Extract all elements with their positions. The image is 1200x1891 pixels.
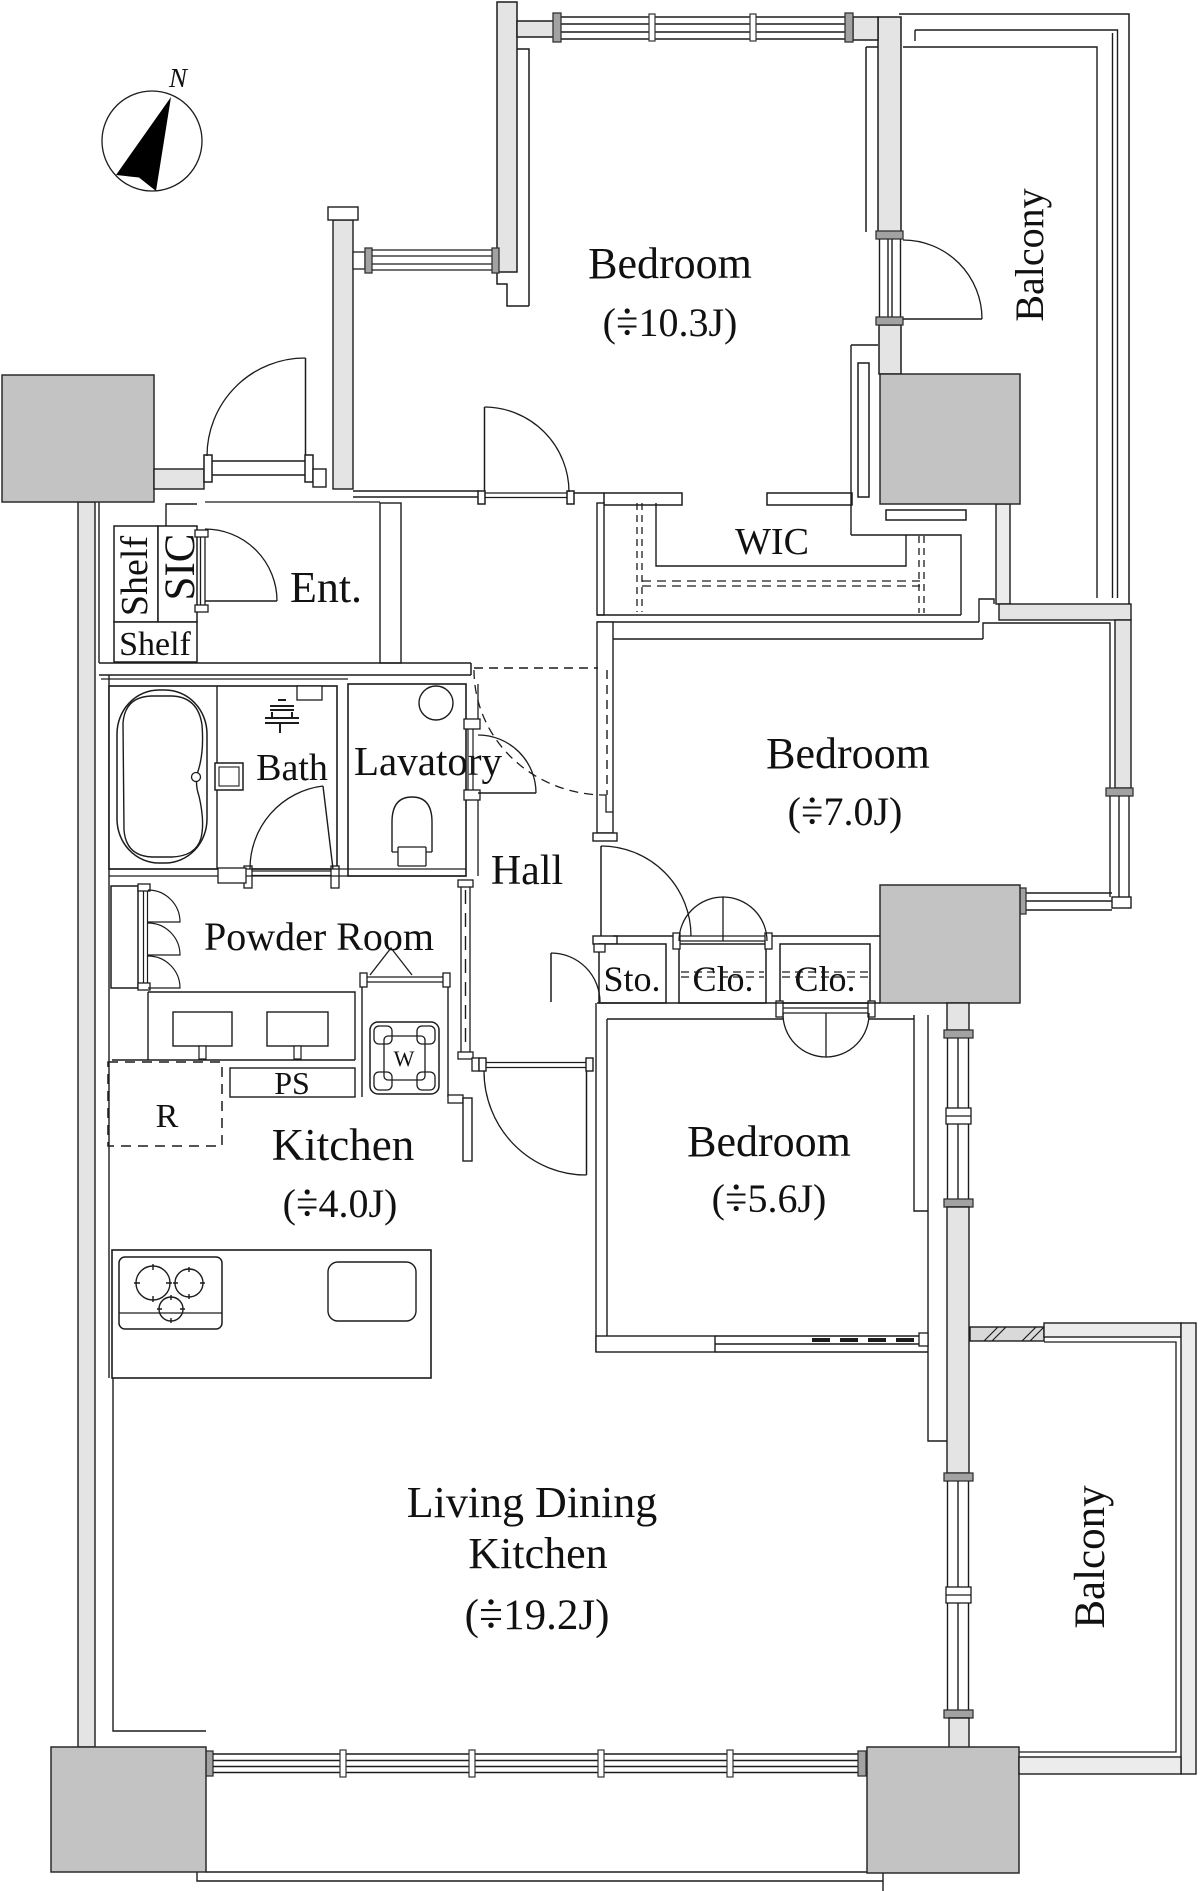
svg-text:Bath: Bath — [256, 747, 328, 789]
svg-text:Kitchen: Kitchen — [272, 1120, 414, 1170]
svg-text:Living Dining: Living Dining — [407, 1478, 658, 1527]
svg-text:Powder Room: Powder Room — [204, 914, 434, 959]
svg-text:N: N — [168, 63, 189, 93]
svg-text:Bedroom: Bedroom — [687, 1117, 851, 1166]
svg-text:Shelf: Shelf — [114, 536, 156, 617]
svg-text:Shelf: Shelf — [119, 626, 191, 663]
svg-text:SIC: SIC — [157, 534, 204, 601]
svg-text:Bedroom: Bedroom — [766, 729, 930, 778]
svg-text:R: R — [156, 1098, 179, 1135]
svg-text:Balcony: Balcony — [1007, 188, 1052, 321]
svg-text:Lavatory: Lavatory — [354, 738, 502, 784]
svg-text:PS: PS — [274, 1065, 310, 1101]
svg-text:Balcony: Balcony — [1067, 1485, 1114, 1629]
svg-text:(=7.0J): (=7.0J) — [788, 789, 903, 834]
svg-text:Clo.: Clo. — [794, 959, 855, 999]
svg-text:Clo.: Clo. — [692, 959, 753, 999]
svg-text:W: W — [394, 1046, 415, 1071]
svg-text:Ent.: Ent. — [290, 563, 362, 612]
svg-text:(=10.3J): (=10.3J) — [603, 300, 738, 345]
svg-text:(=5.6J): (=5.6J) — [712, 1176, 827, 1221]
svg-text:Hall: Hall — [491, 848, 563, 894]
svg-text:Kitchen: Kitchen — [468, 1529, 607, 1578]
svg-text:WIC: WIC — [735, 521, 809, 563]
svg-text:Bedroom: Bedroom — [588, 239, 752, 288]
svg-text:Sto.: Sto. — [603, 959, 660, 999]
svg-text:(=4.0J): (=4.0J) — [283, 1181, 398, 1226]
svg-text:(=19.2J): (=19.2J) — [465, 1592, 610, 1639]
